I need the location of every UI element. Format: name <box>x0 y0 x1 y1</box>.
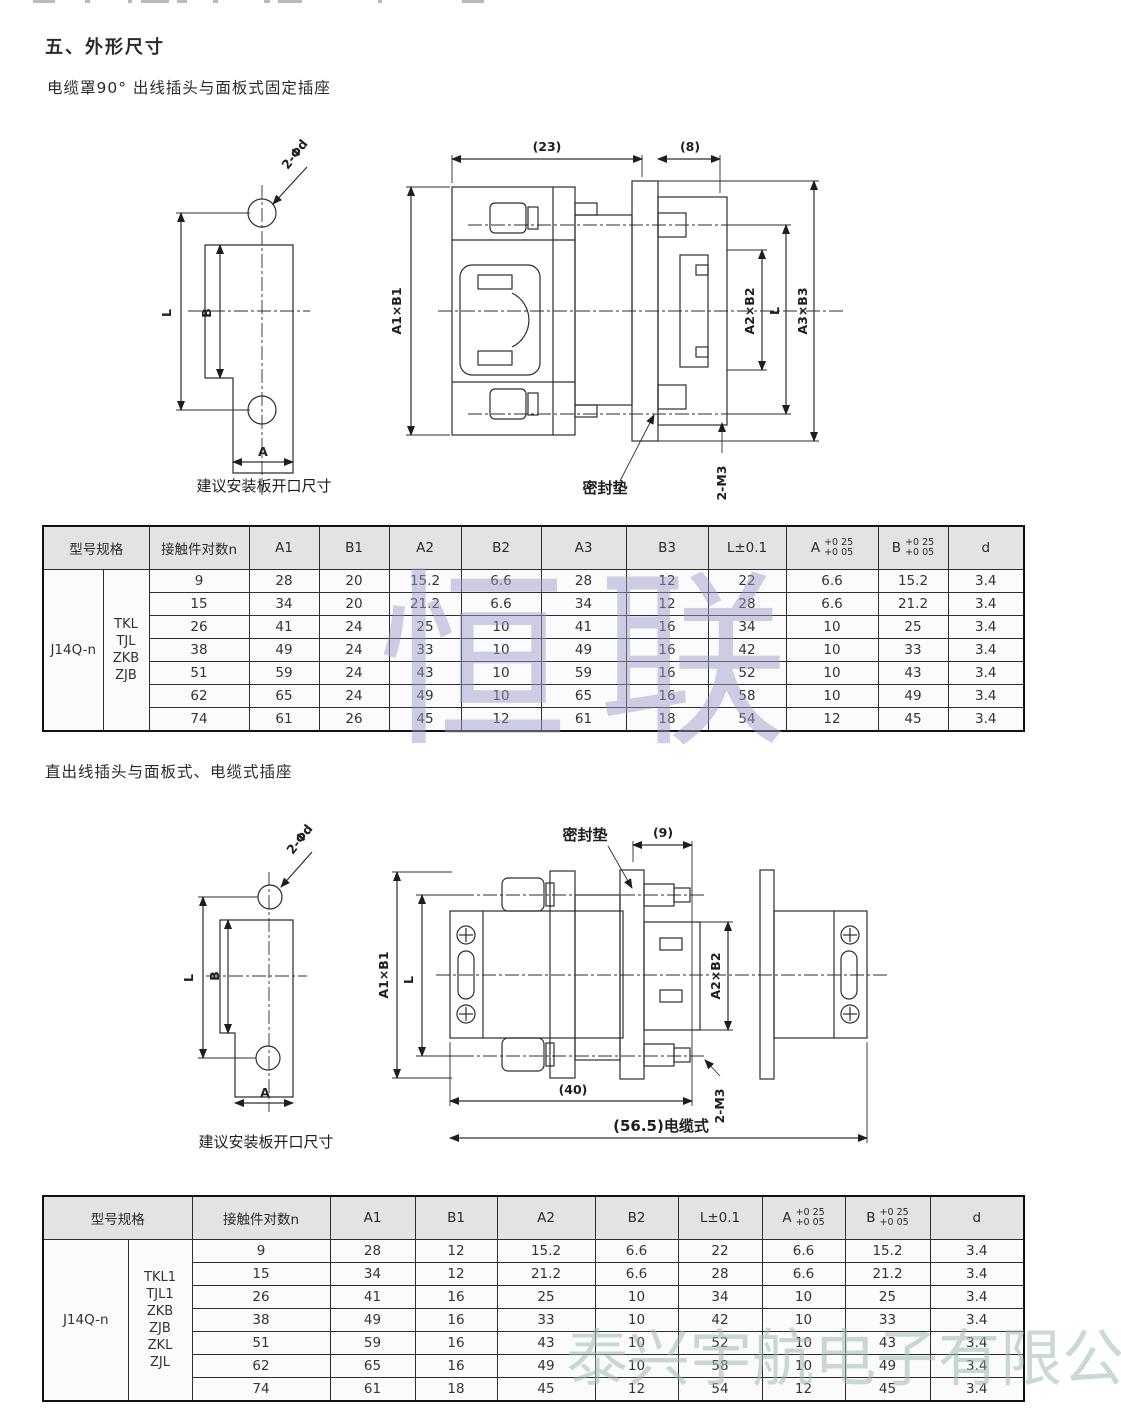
col-header-b3: B3 <box>626 526 708 570</box>
table-cell: 18 <box>626 708 708 732</box>
table-cell: 49 <box>330 1309 415 1332</box>
datasheet-page: 五、外形尺寸 电缆罩90° 出线插头与面板式固定插座 L B <box>0 0 1121 1424</box>
table-cell: 42 <box>678 1309 762 1332</box>
table-cell: 28 <box>708 593 786 616</box>
drawing2: L B A 2-Φd 建议安装板开口尺寸 <box>60 798 900 1163</box>
table-cell: 10 <box>595 1286 678 1309</box>
col-header-model: 型号规格 <box>43 1196 192 1240</box>
table-cell: 10 <box>595 1309 678 1332</box>
table-cell: 25 <box>878 616 948 639</box>
holes-label: 2-Φd <box>278 136 310 172</box>
table-cell: 12 <box>762 1378 845 1402</box>
table-cell: 6.6 <box>786 593 878 616</box>
table-cell: 43 <box>878 662 948 685</box>
table-cell: 33 <box>389 639 461 662</box>
table-cell: 26 <box>149 616 249 639</box>
table-cell: 15.2 <box>878 570 948 593</box>
seal-gasket-label: 密封垫 <box>562 826 607 844</box>
table-cell: 52 <box>708 662 786 685</box>
col-header-b2: B2 <box>595 1196 678 1240</box>
table-cell: 15 <box>149 593 249 616</box>
table-cell: 51 <box>149 662 249 685</box>
table-cell: 10 <box>786 639 878 662</box>
section-title: 五、外形尺寸 <box>45 33 165 59</box>
table-cell: 49 <box>541 639 626 662</box>
table-cell: 33 <box>845 1309 930 1332</box>
dim-label-A2B2: A2×B2 <box>708 952 723 999</box>
table-cell: 12 <box>786 708 878 732</box>
dim-label-56-cable: (56.5)电缆式 <box>613 1117 709 1135</box>
table-cell: 62 <box>149 685 249 708</box>
table-cell: 3.4 <box>930 1378 1024 1402</box>
table-cell: 10 <box>762 1355 845 1378</box>
seal-gasket-label: 密封垫 <box>582 479 627 497</box>
table-cell: 38 <box>149 639 249 662</box>
col-header-n: 接触件对数n <box>192 1196 330 1240</box>
table-cell: 45 <box>497 1378 595 1402</box>
table-cell: 51 <box>192 1332 330 1355</box>
table-cell: 54 <box>678 1378 762 1402</box>
col-header-a1: A1 <box>330 1196 415 1240</box>
table-cell: 45 <box>845 1378 930 1402</box>
table-cell: 61 <box>249 708 319 732</box>
table-cell: 28 <box>249 570 319 593</box>
table-cell: 34 <box>678 1286 762 1309</box>
table-cell: 33 <box>497 1309 595 1332</box>
col-header-b2: B2 <box>461 526 541 570</box>
table-cell: 9 <box>192 1240 330 1263</box>
col-header-tolerance-a: A+0 25+0 05 <box>762 1196 845 1240</box>
table-cell: 10 <box>762 1286 845 1309</box>
dim-label-A: A <box>258 444 268 459</box>
model-types-cell: TKLTJLZKBZJB <box>103 570 149 732</box>
dim-label-L: L <box>159 309 174 317</box>
table-cell: 62 <box>192 1355 330 1378</box>
table-cell: 12 <box>626 570 708 593</box>
table-cell: 3.4 <box>948 593 1024 616</box>
table-cell: 6.6 <box>461 593 541 616</box>
table-cell: 12 <box>595 1378 678 1402</box>
table-cell: 9 <box>149 570 249 593</box>
col-header-n: 接触件对数n <box>149 526 249 570</box>
table-cell: 20 <box>319 593 389 616</box>
table-cell: 16 <box>626 616 708 639</box>
table-cell: 10 <box>786 616 878 639</box>
dim-label-A3B3: A3×B3 <box>795 287 810 334</box>
table-cell: 41 <box>330 1286 415 1309</box>
table-cell: 3.4 <box>948 685 1024 708</box>
table-cell: 61 <box>541 708 626 732</box>
table-cell: 10 <box>762 1309 845 1332</box>
col-header-a2: A2 <box>389 526 461 570</box>
col-header-tolerance-b: B+0 25+0 05 <box>878 526 948 570</box>
table-cell: 58 <box>708 685 786 708</box>
table-cell: 42 <box>708 639 786 662</box>
model-cell: J14Q-n <box>43 1240 128 1402</box>
table-cell: 41 <box>541 616 626 639</box>
table-cell: 43 <box>389 662 461 685</box>
table-cell: 45 <box>878 708 948 732</box>
table-cell: 10 <box>762 1332 845 1355</box>
table-cell: 21.2 <box>389 593 461 616</box>
table-row: 264124251041163410253.4 <box>43 616 1024 639</box>
dim-label-B: B <box>207 971 222 981</box>
table-cell: 59 <box>249 662 319 685</box>
table-cell: 16 <box>626 639 708 662</box>
table-cell: 58 <box>678 1355 762 1378</box>
table-cell: 3.4 <box>930 1355 1024 1378</box>
table-cell: 49 <box>249 639 319 662</box>
table-cell: 45 <box>389 708 461 732</box>
mounting-plate-drawing-2: L B A 2-Φd 建议安装板开口尺寸 <box>181 821 334 1151</box>
dim-label-B: B <box>199 308 214 318</box>
table-cell: 74 <box>149 708 249 732</box>
table-row: J14Q-nTKLTJLZKBZJB9282015.26.62812226.61… <box>43 570 1024 593</box>
col-header-l: L±0.1 <box>678 1196 762 1240</box>
table-cell: 33 <box>878 639 948 662</box>
table-cell: 6.6 <box>461 570 541 593</box>
table-cell: 10 <box>595 1355 678 1378</box>
connector-side-view-2: 密封垫 (9) A1×B1 L A2×B2 2-M3 <box>376 825 888 1143</box>
table-cell: 25 <box>845 1286 930 1309</box>
table-cell: 59 <box>541 662 626 685</box>
table-cell: 74 <box>192 1378 330 1402</box>
table-cell: 10 <box>786 685 878 708</box>
table-cell: 21.2 <box>497 1263 595 1286</box>
col-header-l: L±0.1 <box>708 526 786 570</box>
model-cell: J14Q-n <box>43 570 103 732</box>
table-cell: 24 <box>319 616 389 639</box>
col-header-d: d <box>930 1196 1024 1240</box>
table-cell: 12 <box>415 1263 497 1286</box>
table-cell: 3.4 <box>948 662 1024 685</box>
drawing2-subtitle: 直出线插头与面板式、电缆式插座 <box>45 760 293 782</box>
table-cell: 16 <box>626 685 708 708</box>
drawing1: L B A 2-Φd 建议安装板开口尺寸 <box>60 115 860 515</box>
table-cell: 3.4 <box>930 1263 1024 1286</box>
table-cell: 28 <box>678 1263 762 1286</box>
col-header-tolerance-b: B+0 25+0 05 <box>845 1196 930 1240</box>
table-cell: 16 <box>415 1309 497 1332</box>
table-cell: 26 <box>319 708 389 732</box>
table-cell: 54 <box>708 708 786 732</box>
table-cell: 49 <box>845 1355 930 1378</box>
table-cell: 22 <box>708 570 786 593</box>
dim-label-L2: L <box>401 976 416 984</box>
col-header-tolerance-a: A+0 25+0 05 <box>786 526 878 570</box>
table-cell: 16 <box>415 1355 497 1378</box>
dim-label-8: (8) <box>680 139 700 154</box>
table-cell: 3.4 <box>930 1240 1024 1263</box>
dim-label-9: (9) <box>653 825 673 840</box>
dim-label-A2B2: A2×B2 <box>742 287 757 334</box>
table-cell: 10 <box>461 685 541 708</box>
table-cell: 52 <box>678 1332 762 1355</box>
table-cell: 59 <box>330 1332 415 1355</box>
table-cell: 65 <box>249 685 319 708</box>
table-cell: 6.6 <box>595 1263 678 1286</box>
table-cell: 6.6 <box>762 1240 845 1263</box>
table-row: 746126451261185412453.4 <box>43 708 1024 732</box>
table-cell: 10 <box>461 639 541 662</box>
table-cell: 28 <box>541 570 626 593</box>
table-cell: 25 <box>389 616 461 639</box>
table-cell: 34 <box>249 593 319 616</box>
table-row: 15342021.26.63412286.621.23.4 <box>43 593 1024 616</box>
table-row: 626524491065165810493.4 <box>43 685 1024 708</box>
table-cell: 65 <box>541 685 626 708</box>
table-cell: 3.4 <box>948 616 1024 639</box>
col-header-b1: B1 <box>415 1196 497 1240</box>
table-row: 384924331049164210333.4 <box>43 639 1024 662</box>
table-cell: 10 <box>461 662 541 685</box>
col-header-d: d <box>948 526 1024 570</box>
table-cell: 61 <box>330 1378 415 1402</box>
table-cell: 15.2 <box>845 1240 930 1263</box>
table-cell: 3.4 <box>930 1286 1024 1309</box>
dim-label-A1B1: A1×B1 <box>376 951 391 998</box>
table-cell: 49 <box>878 685 948 708</box>
table-cell: 34 <box>708 616 786 639</box>
dim-label-2M3: 2-M3 <box>714 465 729 500</box>
table-cell: 22 <box>678 1240 762 1263</box>
table-cell: 49 <box>497 1355 595 1378</box>
table-cell: 10 <box>786 662 878 685</box>
table-cell: 6.6 <box>595 1240 678 1263</box>
table-cell: 6.6 <box>786 570 878 593</box>
plate-caption: 建议安装板开口尺寸 <box>198 1133 333 1151</box>
table-cell: 43 <box>497 1332 595 1355</box>
table-cell: 12 <box>415 1240 497 1263</box>
model-types-cell: TKL1TJL1ZKBZJBZKLZJL <box>128 1240 192 1402</box>
table-cell: 3.4 <box>948 570 1024 593</box>
holes-label: 2-Φd <box>283 821 315 857</box>
table-row: J14Q-nTKL1TJL1ZKBZJBZKLZJL9281215.26.622… <box>43 1240 1024 1263</box>
table-cell: 34 <box>541 593 626 616</box>
table-cell: 16 <box>415 1286 497 1309</box>
table-cell: 15.2 <box>389 570 461 593</box>
table-cell: 12 <box>626 593 708 616</box>
table-cell: 18 <box>415 1378 497 1402</box>
table-cell: 41 <box>249 616 319 639</box>
table-cell: 12 <box>461 708 541 732</box>
table-cell: 3.4 <box>948 708 1024 732</box>
table-cell: 20 <box>319 570 389 593</box>
table-cell: 6.6 <box>762 1263 845 1286</box>
dim-label-L: L <box>181 974 196 982</box>
col-header-b1: B1 <box>319 526 389 570</box>
table-cell: 21.2 <box>878 593 948 616</box>
dimensions-table-1: 型号规格 接触件对数n A1 B1 A2 B2 A3 B3 L±0.1 A+0 … <box>42 525 1025 732</box>
table-cell: 43 <box>845 1332 930 1355</box>
dimensions-table-2: 型号规格 接触件对数n A1 B1 A2 B2 L±0.1 A+0 25+0 0… <box>42 1195 1025 1402</box>
table-cell: 16 <box>415 1332 497 1355</box>
table-cell: 38 <box>192 1309 330 1332</box>
table-cell: 16 <box>626 662 708 685</box>
dim-label-23: (23) <box>533 139 562 154</box>
col-header-a1: A1 <box>249 526 319 570</box>
table-header-row: 型号规格 接触件对数n A1 B1 A2 B2 A3 B3 L±0.1 A+0 … <box>43 526 1024 570</box>
table-cell: 3.4 <box>930 1332 1024 1355</box>
dim-label-2M3: 2-M3 <box>712 1088 727 1123</box>
table-cell: 3.4 <box>948 639 1024 662</box>
col-header-a2: A2 <box>497 1196 595 1240</box>
table-header-row: 型号规格 接触件对数n A1 B1 A2 B2 L±0.1 A+0 25+0 0… <box>43 1196 1024 1240</box>
table-cell: 26 <box>192 1286 330 1309</box>
table-cell: 65 <box>330 1355 415 1378</box>
table-cell: 28 <box>330 1240 415 1263</box>
col-header-a3: A3 <box>541 526 626 570</box>
table-cell: 10 <box>595 1332 678 1355</box>
table-cell: 24 <box>319 662 389 685</box>
dim-label-40: (40) <box>559 1082 588 1097</box>
table-cell: 24 <box>319 685 389 708</box>
dim-label-A1B1: A1×B1 <box>389 287 404 334</box>
table-row: 515924431059165210433.4 <box>43 662 1024 685</box>
connector-side-view-1: (23) (8) A1×B1 A2×B2 L A3×B3 <box>389 139 846 501</box>
table-cell: 24 <box>319 639 389 662</box>
col-header-model: 型号规格 <box>43 526 149 570</box>
plate-caption: 建议安装板开口尺寸 <box>196 477 331 495</box>
table-cell: 34 <box>330 1263 415 1286</box>
drawing1-subtitle: 电缆罩90° 出线插头与面板式固定插座 <box>47 76 331 98</box>
table-cell: 49 <box>389 685 461 708</box>
dim-label-L2: L <box>767 307 782 315</box>
table-cell: 15.2 <box>497 1240 595 1263</box>
table-cell: 15 <box>192 1263 330 1286</box>
table-cell: 3.4 <box>930 1309 1024 1332</box>
table-cell: 25 <box>497 1286 595 1309</box>
mounting-plate-drawing-1: L B A 2-Φd 建议安装板开口尺寸 <box>159 136 332 495</box>
table-cell: 21.2 <box>845 1263 930 1286</box>
dim-label-A: A <box>260 1085 270 1100</box>
table-cell: 10 <box>461 616 541 639</box>
